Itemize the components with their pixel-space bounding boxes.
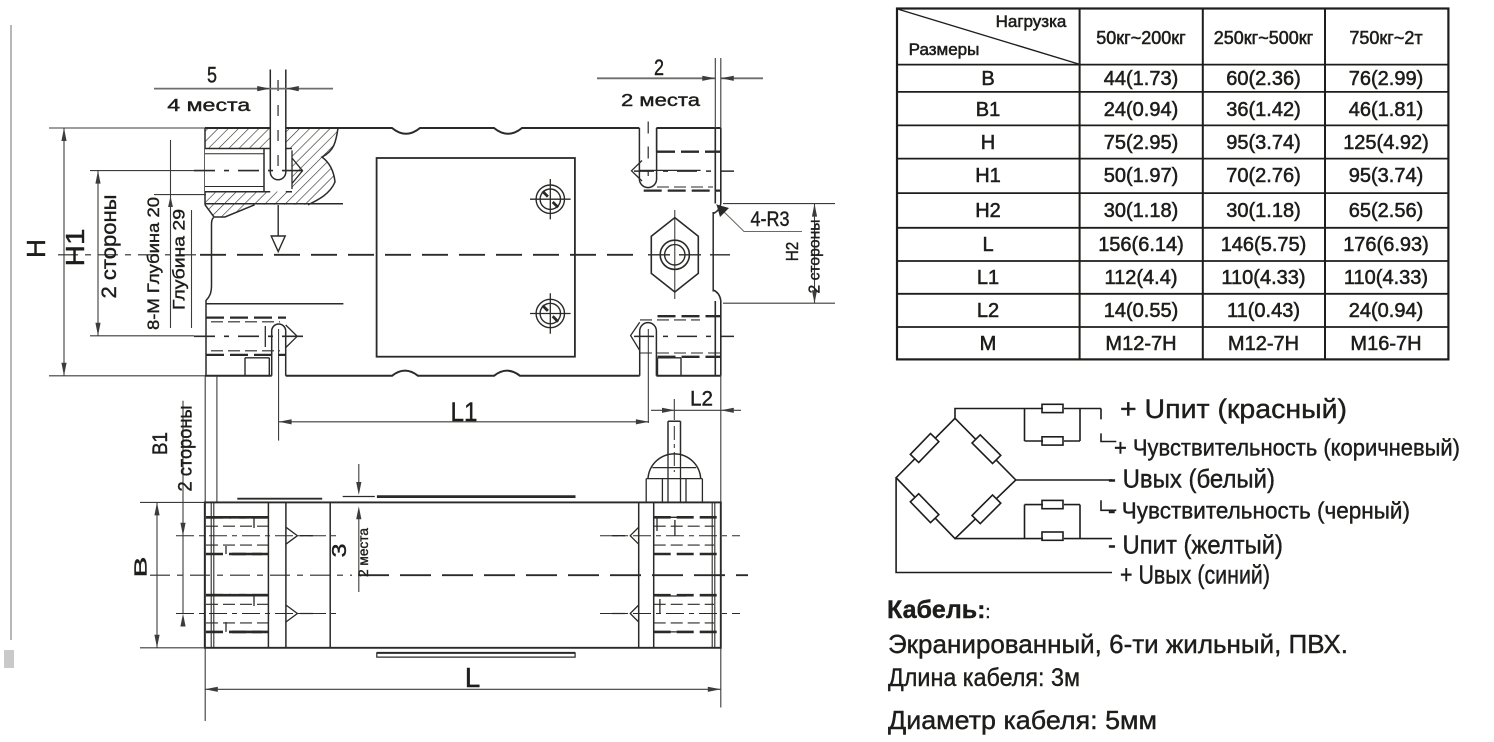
svg-text:75(2.95): 75(2.95) xyxy=(1104,132,1179,154)
svg-text:5: 5 xyxy=(207,63,217,88)
svg-text:36(1.42): 36(1.42) xyxy=(1226,99,1301,121)
svg-text:3: 3 xyxy=(329,544,351,558)
svg-text:Длина кабеля: 3м: Длина кабеля: 3м xyxy=(888,664,1080,692)
svg-text:95(3.74): 95(3.74) xyxy=(1226,132,1301,154)
svg-text:H2: H2 xyxy=(975,200,1001,222)
svg-text:L1: L1 xyxy=(977,267,999,289)
svg-text:60(2.36): 60(2.36) xyxy=(1226,68,1301,90)
svg-text:95(3.74): 95(3.74) xyxy=(1349,165,1424,187)
svg-text:2 места: 2 места xyxy=(355,528,371,577)
svg-text:- Uпит (желтый): - Uпит (желтый) xyxy=(1108,530,1283,560)
svg-text:156(6.14): 156(6.14) xyxy=(1098,234,1184,256)
svg-text:30(1.18): 30(1.18) xyxy=(1104,200,1179,222)
svg-text:+ Uвых (синий): + Uвых (синий) xyxy=(1120,560,1270,590)
svg-text:M12-7H: M12-7H xyxy=(1228,333,1299,355)
svg-text:65(2.56): 65(2.56) xyxy=(1349,200,1424,222)
svg-text:M16-7H: M16-7H xyxy=(1350,333,1421,355)
svg-text:L: L xyxy=(982,234,993,256)
svg-text:H: H xyxy=(981,132,995,154)
svg-text:H1: H1 xyxy=(60,229,90,267)
svg-text:70(2.76): 70(2.76) xyxy=(1226,165,1301,187)
svg-text:24(0.94): 24(0.94) xyxy=(1104,99,1179,121)
svg-text:44(1.73): 44(1.73) xyxy=(1104,68,1179,90)
svg-text:50кг~200кг: 50кг~200кг xyxy=(1096,28,1186,48)
svg-text:Размеры: Размеры xyxy=(909,40,980,59)
svg-text:2 стороны: 2 стороны xyxy=(807,220,824,294)
svg-text:250кг~500кг: 250кг~500кг xyxy=(1214,28,1314,48)
svg-text:M: M xyxy=(980,333,997,355)
svg-text:B: B xyxy=(131,557,151,578)
svg-text:14(0.55): 14(0.55) xyxy=(1104,300,1179,322)
svg-text:2 стороны: 2 стороны xyxy=(176,406,197,492)
svg-text:Диаметр кабеля: 5мм: Диаметр кабеля: 5мм xyxy=(888,705,1157,735)
svg-text:- Чувствительность (черный): - Чувствительность (черный) xyxy=(1108,498,1410,524)
svg-text:112(4.4): 112(4.4) xyxy=(1104,267,1177,289)
svg-text:110(4.33): 110(4.33) xyxy=(1344,267,1428,289)
svg-text:2 стороны: 2 стороны xyxy=(98,195,121,299)
svg-text:76(2.99): 76(2.99) xyxy=(1349,68,1424,90)
svg-text:46(1.81): 46(1.81) xyxy=(1349,99,1424,121)
svg-text:H: H xyxy=(21,239,51,258)
svg-text:Глубина 29: Глубина 29 xyxy=(170,209,189,310)
svg-text:L1: L1 xyxy=(451,397,478,427)
svg-text:11(0.43): 11(0.43) xyxy=(1227,300,1300,322)
svg-text:4-R3: 4-R3 xyxy=(751,208,790,231)
svg-text:8-М Глубина 20: 8-М Глубина 20 xyxy=(144,197,163,330)
svg-text:176(6.93): 176(6.93) xyxy=(1343,234,1429,256)
svg-text:125(4.92): 125(4.92) xyxy=(1343,132,1429,154)
svg-text:750кг~2т: 750кг~2т xyxy=(1349,28,1422,48)
svg-text:146(5.75): 146(5.75) xyxy=(1221,234,1307,256)
svg-text:Кабель::: Кабель:: xyxy=(887,596,990,624)
svg-text:30(1.18): 30(1.18) xyxy=(1226,200,1301,222)
svg-text:- Uвых (белый): - Uвых (белый) xyxy=(1108,464,1275,494)
svg-text:110(4.33): 110(4.33) xyxy=(1221,267,1305,289)
svg-text:4 места: 4 места xyxy=(167,95,250,115)
svg-text:L2: L2 xyxy=(690,388,713,411)
svg-text:50(1.97): 50(1.97) xyxy=(1104,165,1179,187)
svg-text:L2: L2 xyxy=(977,300,999,322)
svg-text:H2: H2 xyxy=(782,242,802,262)
svg-text:B1: B1 xyxy=(149,432,172,455)
svg-text:2: 2 xyxy=(654,55,664,80)
svg-text:Нагрузка: Нагрузка xyxy=(996,12,1067,31)
svg-text:M12-7H: M12-7H xyxy=(1105,333,1176,355)
svg-text:B: B xyxy=(981,68,994,90)
svg-text:L: L xyxy=(465,662,481,693)
svg-text:B1: B1 xyxy=(976,99,1000,121)
svg-text:24(0.94): 24(0.94) xyxy=(1349,300,1424,322)
svg-text:2 места: 2 места xyxy=(621,90,700,110)
svg-text:Экранированный, 6-ти жильный,: Экранированный, 6-ти жильный, ПВХ. xyxy=(888,629,1348,659)
svg-text:H1: H1 xyxy=(975,165,1001,187)
svg-text:+ Чувствительность (коричневый: + Чувствительность (коричневый) xyxy=(1114,435,1460,461)
svg-text:+ Uпит (красный): + Uпит (красный) xyxy=(1120,394,1347,424)
